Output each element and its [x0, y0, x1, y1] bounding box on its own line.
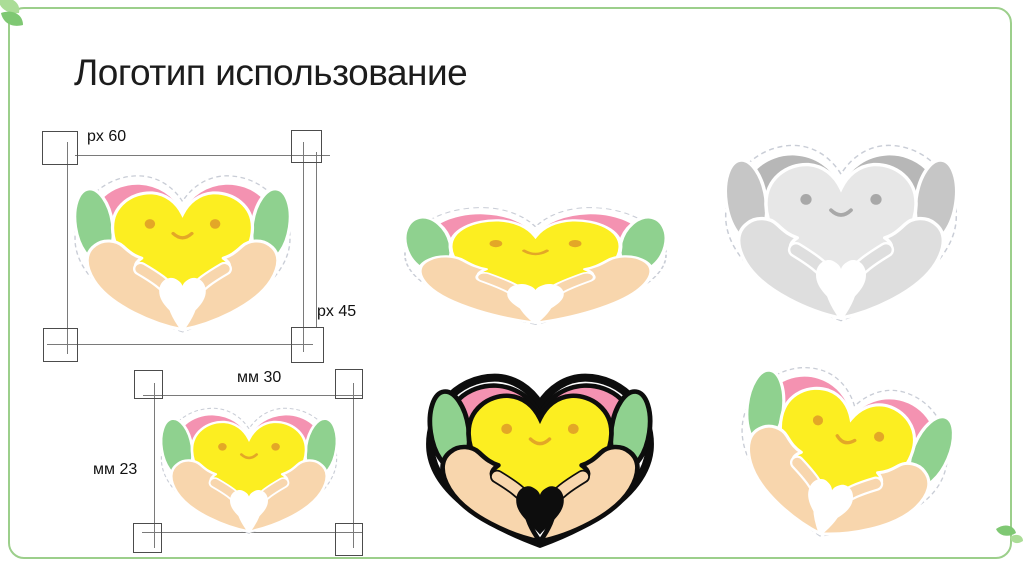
leaf-decoration-icon-top-left — [0, 0, 43, 29]
leaf-decoration-icon-bottom-right — [994, 519, 1024, 547]
logo-stretched-variant — [394, 198, 677, 326]
mm-height-label: мм 23 — [93, 461, 137, 479]
logo-black-outline-variant — [421, 364, 659, 546]
logo-px-size-variant — [66, 163, 299, 334]
slide-canvas: Логотип использование px 60 px 45 мм 30 … — [0, 0, 1024, 574]
logo-grayscale-variant — [716, 131, 966, 323]
px-height-label: px 45 — [317, 303, 356, 321]
slide-title: Логотип использование — [74, 52, 467, 94]
mm-width-label: мм 30 — [237, 369, 281, 387]
px-width-label: px 60 — [87, 128, 126, 146]
logo-mm-size-variant — [154, 398, 344, 535]
